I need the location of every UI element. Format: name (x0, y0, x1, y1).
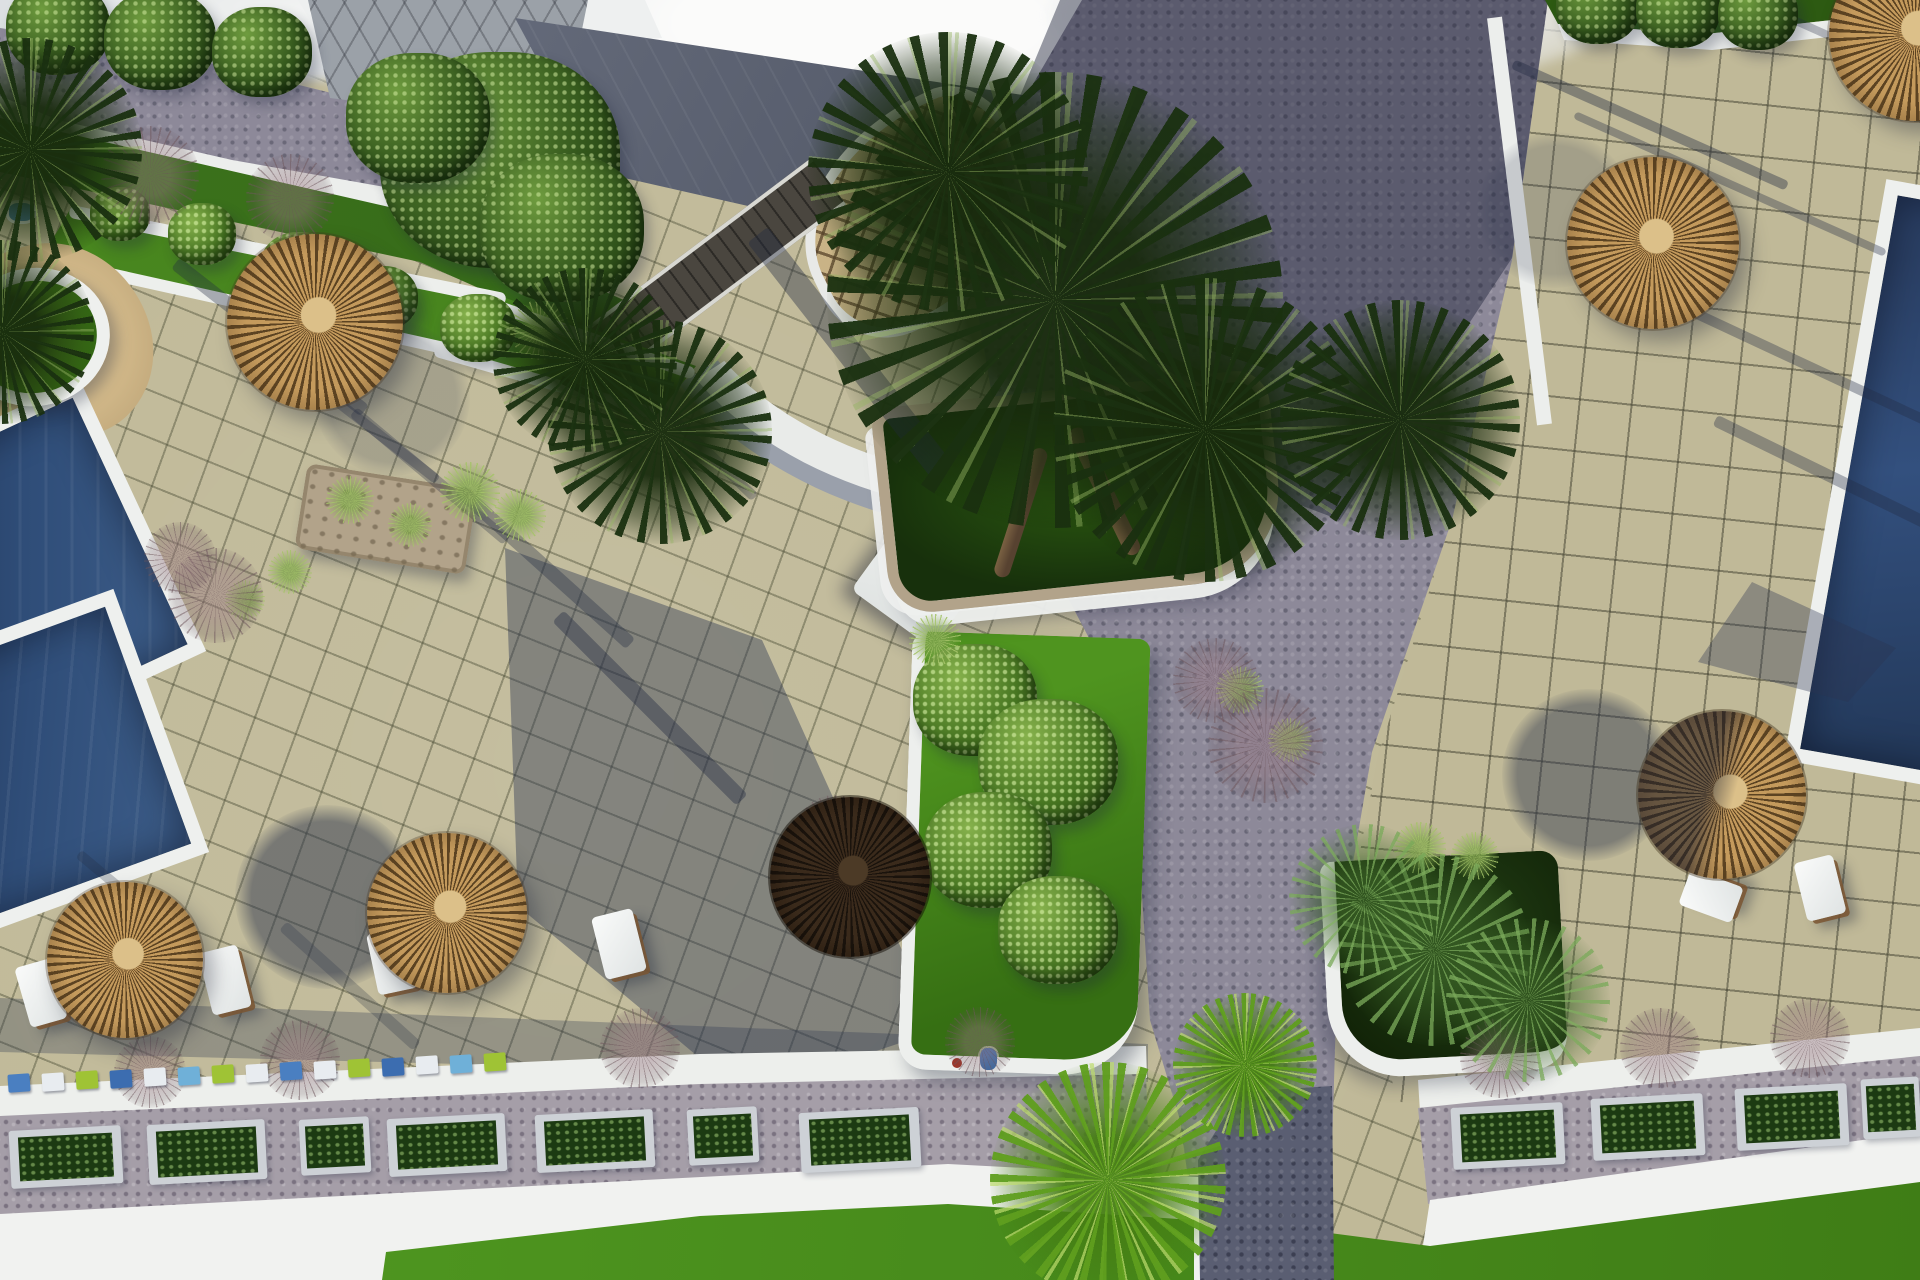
thatch-umbrella (227, 234, 403, 410)
thatch-umbrella (1638, 711, 1806, 879)
thatch-umbrella (367, 833, 527, 993)
umbrella-layer (0, 0, 1920, 1280)
resort-aerial-render (0, 0, 1920, 1280)
thatch-umbrella (47, 882, 203, 1038)
thatch-umbrella (1567, 157, 1739, 329)
thatch-umbrella (1829, 0, 1920, 121)
thatch-umbrella (770, 797, 930, 957)
